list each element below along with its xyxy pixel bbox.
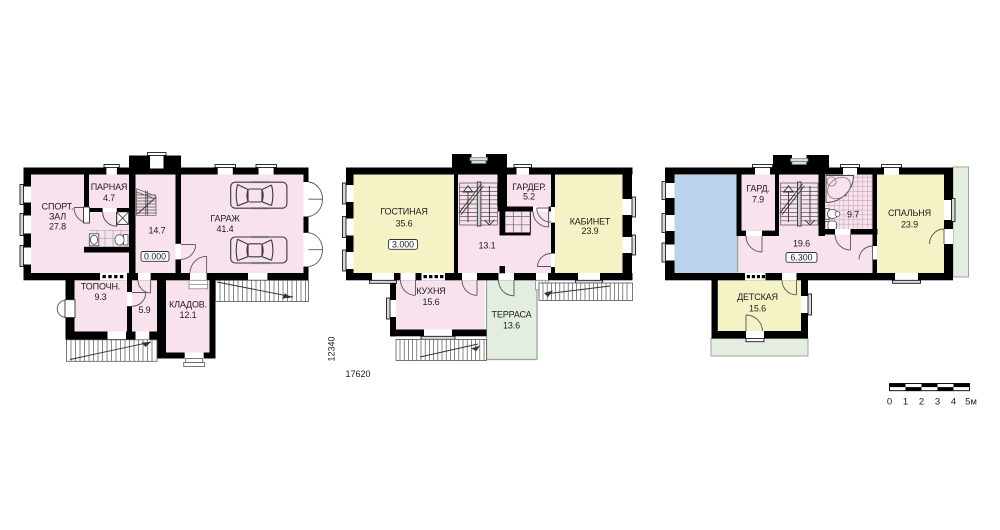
svg-text:3.000: 3.000 [392, 239, 414, 249]
svg-text:ГОСТИНАЯ: ГОСТИНАЯ [380, 207, 427, 217]
svg-text:13.1: 13.1 [479, 241, 496, 251]
svg-text:17620: 17620 [345, 369, 370, 379]
svg-text:ГАРАЖ: ГАРАЖ [210, 214, 240, 224]
svg-text:19.6: 19.6 [793, 239, 810, 249]
svg-text:7.9: 7.9 [752, 195, 764, 205]
svg-text:12340: 12340 [327, 336, 337, 361]
svg-text:0: 0 [887, 397, 892, 408]
svg-text:ГАРД.: ГАРД. [746, 184, 770, 194]
svg-text:6.300: 6.300 [790, 252, 812, 262]
svg-text:5.2: 5.2 [523, 192, 535, 202]
svg-text:15.6: 15.6 [749, 304, 766, 314]
svg-text:15.6: 15.6 [423, 297, 440, 307]
svg-text:13.6: 13.6 [503, 321, 520, 331]
svg-text:3: 3 [935, 397, 940, 408]
svg-text:12.1: 12.1 [180, 310, 197, 320]
svg-text:5.9: 5.9 [138, 305, 150, 315]
svg-text:9.3: 9.3 [94, 292, 106, 302]
svg-text:КУХНЯ: КУХНЯ [416, 286, 445, 296]
svg-text:КЛАДОВ.: КЛАДОВ. [169, 300, 207, 310]
svg-text:5м: 5м [965, 397, 977, 408]
svg-text:2: 2 [919, 397, 924, 408]
svg-text:9.7: 9.7 [847, 210, 859, 220]
svg-text:ДЕТСКАЯ: ДЕТСКАЯ [737, 292, 778, 302]
svg-text:1: 1 [903, 397, 908, 408]
svg-text:14.7: 14.7 [149, 226, 166, 236]
svg-text:35.6: 35.6 [396, 219, 413, 229]
svg-text:КАБИНЕТ: КАБИНЕТ [570, 217, 611, 227]
svg-text:4.7: 4.7 [103, 193, 115, 203]
svg-text:ПАРНАЯ: ПАРНАЯ [91, 182, 128, 192]
svg-text:ГАРДЕР.: ГАРДЕР. [512, 182, 546, 192]
svg-text:23.9: 23.9 [901, 220, 918, 230]
svg-text:СПОРТ.: СПОРТ. [42, 202, 74, 212]
svg-text:23.9: 23.9 [582, 226, 599, 236]
svg-text:41.4: 41.4 [217, 224, 234, 234]
svg-text:ТОПОЧН.: ТОПОЧН. [81, 282, 120, 292]
svg-text:СПАЛЬНЯ: СПАЛЬНЯ [888, 208, 931, 218]
svg-text:0.000: 0.000 [144, 251, 166, 261]
svg-text:4: 4 [951, 397, 956, 408]
svg-text:ТЕРРАСА: ТЕРРАСА [492, 310, 532, 320]
svg-text:27.8: 27.8 [49, 222, 66, 232]
svg-text:ЗАЛ: ЗАЛ [49, 212, 66, 222]
